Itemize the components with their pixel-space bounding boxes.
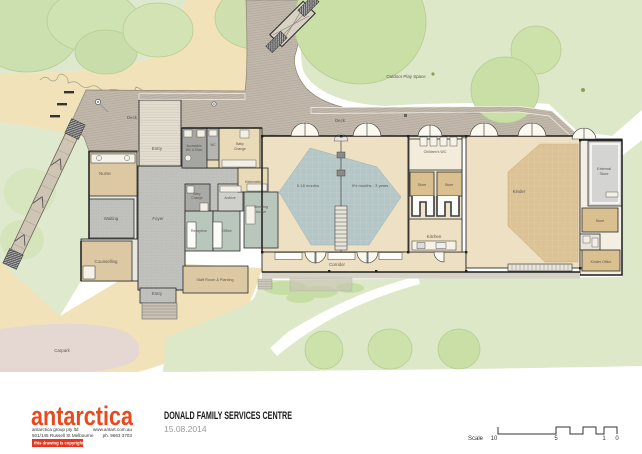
svg-text:Office: Office [222, 229, 231, 233]
svg-text:0-18 months: 0-18 months [297, 183, 319, 188]
svg-text:Waiting: Waiting [104, 216, 119, 221]
svg-text:Counselling: Counselling [95, 259, 119, 264]
svg-text:Deck: Deck [127, 115, 138, 120]
svg-text:Reception: Reception [191, 229, 207, 233]
svg-text:Kinder: Kinder [513, 189, 526, 194]
svg-text:ph. 9663 3703: ph. 9663 3703 [103, 433, 133, 438]
svg-text:9½ months - 3 years: 9½ months - 3 years [352, 183, 388, 188]
svg-text:10: 10 [491, 436, 498, 442]
svg-text:Change: Change [234, 147, 246, 151]
svg-text:Scale: Scale [468, 436, 484, 442]
svg-text:Kitchen: Kitchen [427, 234, 442, 239]
svg-text:External: External [597, 167, 611, 171]
svg-text:Alcove: Alcove [256, 210, 267, 214]
svg-text:DONALD FAMILY SERVICES CENTRE: DONALD FAMILY SERVICES CENTRE [164, 410, 292, 422]
svg-text:WC: WC [210, 143, 216, 147]
svg-text:Change: Change [191, 196, 202, 200]
svg-text:Deck: Deck [335, 118, 346, 123]
svg-text:Store: Store [599, 172, 608, 176]
svg-text:Entry: Entry [152, 146, 163, 151]
svg-text:15.08.2014: 15.08.2014 [164, 424, 207, 434]
svg-text:Sleeping: Sleeping [254, 205, 268, 209]
svg-text:www.antart.com.au: www.antart.com.au [93, 427, 133, 432]
svg-text:Store: Store [445, 183, 454, 187]
svg-text:Entry: Entry [152, 291, 163, 296]
svg-text:Archive: Archive [224, 196, 235, 200]
svg-text:antarctica group pty ltd: antarctica group pty ltd [32, 427, 79, 432]
svg-text:501/145 Russell St Melbourne: 501/145 Russell St Melbourne [32, 433, 94, 438]
svg-text:WC & Shwr: WC & Shwr [186, 148, 203, 152]
svg-text:Nurse: Nurse [99, 171, 111, 176]
svg-text:Store: Store [418, 183, 427, 187]
svg-text:Carpark: Carpark [54, 348, 70, 353]
svg-text:Children's WC: Children's WC [424, 150, 447, 154]
svg-text:Outdoor Play Space: Outdoor Play Space [386, 74, 426, 79]
svg-text:Kitchenette: Kitchenette [245, 180, 261, 184]
svg-text:Store: Store [596, 219, 605, 223]
svg-text:Baby: Baby [236, 142, 244, 146]
svg-text:Kinder Office: Kinder Office [591, 260, 612, 264]
svg-text:Foyer: Foyer [152, 216, 164, 221]
svg-text:this drawing is copyright: this drawing is copyright [34, 441, 84, 446]
svg-text:Staff Room & Planting: Staff Room & Planting [196, 278, 233, 282]
svg-text:Corridor: Corridor [329, 262, 345, 267]
